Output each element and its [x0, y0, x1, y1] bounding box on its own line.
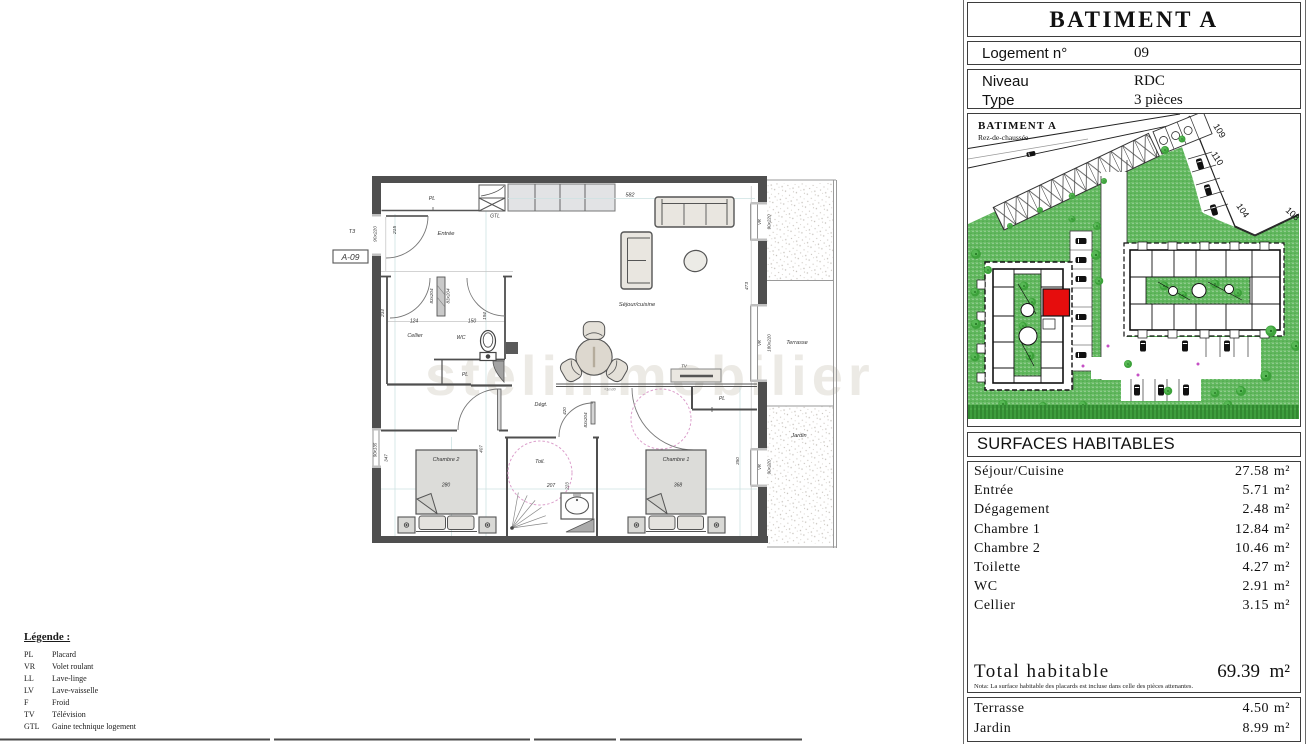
svg-text:Jardin: Jardin: [790, 433, 806, 439]
svg-text:368: 368: [674, 483, 683, 489]
svg-text:207: 207: [546, 483, 556, 489]
svg-text:WC: WC: [457, 335, 466, 341]
svg-text:407: 407: [479, 445, 484, 453]
svg-text:150: 150: [468, 319, 477, 325]
svg-text:Dégt.: Dégt.: [535, 402, 548, 408]
svg-text:Toil.: Toil.: [535, 459, 545, 465]
svg-text:A-09: A-09: [341, 252, 360, 262]
svg-text:347: 347: [384, 454, 389, 462]
svg-text:83x204: 83x204: [583, 412, 588, 428]
svg-text:GTL: GTL: [490, 214, 500, 220]
svg-text:215: 215: [392, 226, 398, 235]
svg-text:350: 350: [735, 457, 740, 465]
svg-text:PL: PL: [719, 396, 725, 402]
svg-text:T3: T3: [349, 229, 356, 235]
svg-text:PL: PL: [462, 372, 468, 378]
svg-text:Séjour/cuisine: Séjour/cuisine: [619, 302, 656, 308]
svg-text:Chambre 2: Chambre 2: [433, 457, 460, 463]
svg-text:90x220: 90x220: [767, 459, 772, 475]
svg-text:194: 194: [482, 312, 487, 320]
svg-text:Rez-de-chaussée: Rez-de-chaussée: [978, 133, 1029, 142]
svg-text:420: 420: [562, 407, 567, 415]
svg-text:124: 124: [410, 319, 419, 325]
svg-text:Cellier: Cellier: [407, 333, 422, 339]
svg-text:≈1m30: ≈1m30: [604, 388, 616, 392]
svg-text:90x220: 90x220: [373, 226, 379, 242]
svg-text:223: 223: [565, 482, 570, 491]
svg-text:VR: VR: [757, 464, 762, 470]
svg-text:Entrée: Entrée: [437, 231, 455, 237]
svg-text:90x220: 90x220: [767, 214, 772, 230]
svg-text:180x220: 180x220: [767, 334, 772, 352]
svg-text:234: 234: [380, 309, 385, 318]
svg-text:PL: PL: [429, 196, 436, 202]
svg-text:Terrasse: Terrasse: [786, 340, 808, 346]
svg-text:90x135: 90x135: [373, 442, 378, 457]
svg-text:VR: VR: [757, 219, 762, 225]
svg-text:VR: VR: [757, 340, 762, 346]
svg-text:280: 280: [441, 483, 451, 489]
svg-text:BATIMENT A: BATIMENT A: [978, 120, 1057, 132]
svg-text:582: 582: [626, 193, 635, 199]
svg-text:83x204: 83x204: [446, 288, 451, 304]
svg-text:83x204: 83x204: [429, 288, 434, 304]
svg-text:473: 473: [744, 282, 750, 290]
svg-text:Chambre 1: Chambre 1: [663, 457, 690, 463]
